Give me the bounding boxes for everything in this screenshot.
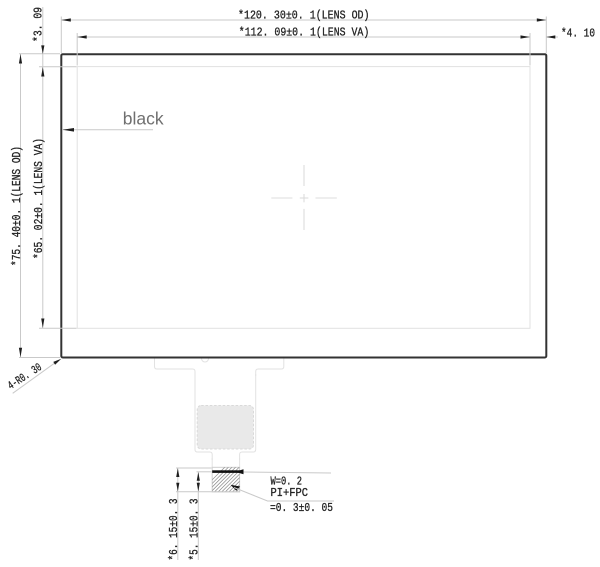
svg-text:*6. 15±0. 3: *6. 15±0. 3 <box>168 498 181 560</box>
svg-text:=0. 3±0. 05: =0. 3±0. 05 <box>270 502 333 515</box>
svg-text:PI+FPC: PI+FPC <box>271 487 309 500</box>
svg-text:*4. 10: *4. 10 <box>561 28 595 41</box>
svg-text:*75. 40±0. 1(LENS OD): *75. 40±0. 1(LENS OD) <box>11 146 24 266</box>
svg-text:*5. 15±0. 3: *5. 15±0. 3 <box>189 498 202 560</box>
svg-text:black: black <box>123 109 164 129</box>
svg-text:*112. 09±0. 1(LENS VA): *112. 09±0. 1(LENS VA) <box>239 26 369 39</box>
svg-text:*120. 30±0. 1(LENS OD): *120. 30±0. 1(LENS OD) <box>238 9 370 22</box>
svg-text:*3. 09: *3. 09 <box>33 7 46 42</box>
svg-text:*65. 02±0. 1(LENS VA): *65. 02±0. 1(LENS VA) <box>33 138 46 259</box>
